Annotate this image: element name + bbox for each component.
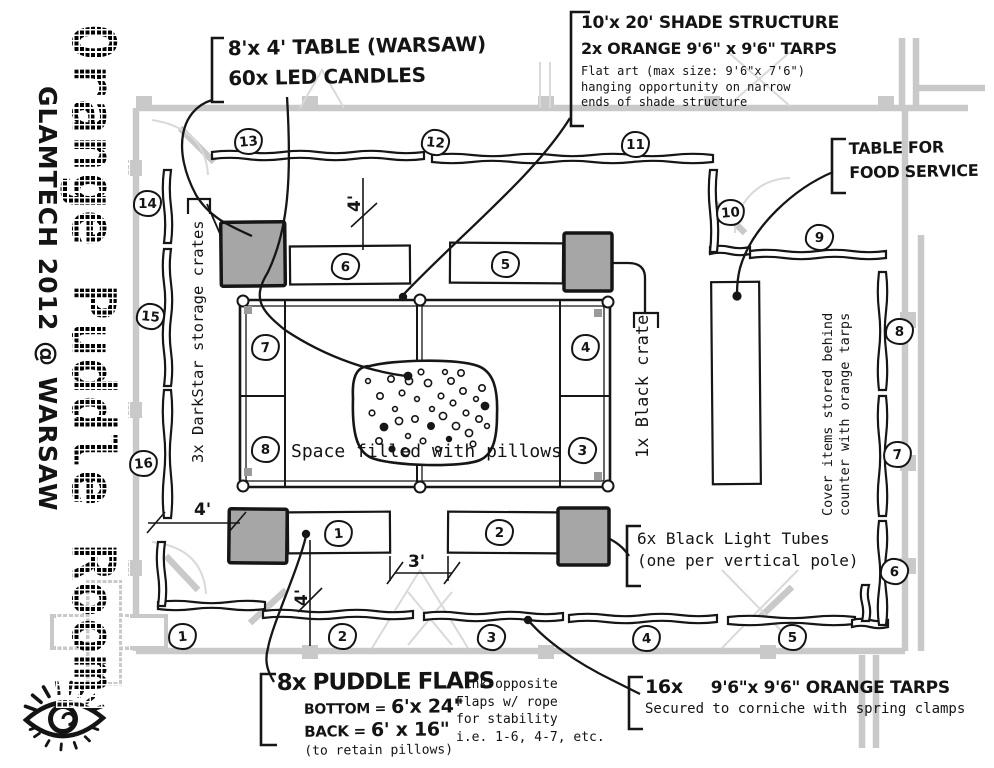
shade-callout-note1: Flat art (max size: 9'6"x 7'6") <box>581 64 839 80</box>
pillow-dot <box>485 424 490 429</box>
dim-label-bottom-4ft: 4' <box>292 589 312 606</box>
dim-label-gap-3ft: 3' <box>408 552 425 572</box>
shade-callout-line2: 2x ORANGE 9'6" x 9'6" TARPS <box>581 39 839 58</box>
pillow-dot <box>366 379 371 384</box>
tarp-wall-segment <box>861 585 870 621</box>
pillow-dot <box>476 416 482 422</box>
shade-callout-line1: 10'x 20' SHADE STRUCTURE <box>581 13 839 33</box>
pillow-dot <box>406 434 411 439</box>
pillow-dot <box>474 397 479 402</box>
label-black-crate: 1x Black crate <box>633 315 653 458</box>
tarp-wall-segment <box>212 151 424 160</box>
tarps-line2: Secured to corniche with spring clamps <box>645 701 965 717</box>
pillow-dot <box>465 429 472 436</box>
eye-ray <box>44 687 50 697</box>
pillow-dot <box>399 390 405 396</box>
shade-callout-note2: hanging opportunity on narrow <box>581 80 839 96</box>
pillow-dot <box>481 402 488 409</box>
food-callout-line1: TABLE FOR <box>849 137 978 158</box>
pillow-dot <box>430 407 435 412</box>
flaps-side4: i.e. 1-6, 4-7, etc. <box>456 729 605 747</box>
tarp-wall-segment <box>728 616 855 625</box>
flaps-bottom-size: 6'x 24" <box>391 695 463 718</box>
callout-food-service: TABLE FOR FOOD SERVICE <box>849 137 979 182</box>
tarp-wall-segment <box>878 396 887 516</box>
callout-orange-tarps: 16x 9'6"x 9'6" ORANGE TARPS Secured to c… <box>645 676 965 717</box>
pillow-dot <box>460 388 466 394</box>
pillow-dot <box>393 407 398 412</box>
label-darkstar-crates: 3x DarkStar storage crates <box>189 220 207 463</box>
floorplan-page: Orange Puddle Room GLAMTECH 2012 @ WARSA… <box>0 0 994 768</box>
tarp-wall-segment <box>163 390 172 518</box>
blacklight-line2: (one per vertical pole) <box>637 551 859 570</box>
pillow-dot <box>424 379 431 386</box>
callout-table-warsaw: 8'x 4' TABLE (WARSAW) 60x LED CANDLES <box>228 32 487 90</box>
event-title: GLAMTECH 2012 @ WARSAW <box>33 86 62 512</box>
eye-ray <box>92 706 102 710</box>
bracket-tarps-callout <box>629 677 643 729</box>
pillow-dot <box>377 393 383 399</box>
tarp-wall-segment <box>569 614 717 623</box>
blacklight-line1: 6x Black Light Tubes <box>637 529 859 548</box>
flaps-side2: Flaps w/ rope <box>456 694 605 712</box>
pillow-dot <box>448 378 454 384</box>
pillow-dot <box>452 422 459 429</box>
tarp-wall-segment <box>750 250 886 259</box>
eye-ray <box>33 695 41 702</box>
eye-ray <box>87 695 95 702</box>
eye-lash <box>92 728 98 730</box>
flaps-bottom-label: BOTTOM = <box>304 701 386 718</box>
tarp-wall-segment <box>424 612 563 621</box>
tarp-wall-segment <box>163 249 172 386</box>
tarp-wall-segment <box>157 542 166 606</box>
food-callout-line2: FOOD SERVICE <box>849 161 978 182</box>
pillow-dot <box>479 385 485 391</box>
tarp-wall-segment <box>263 610 413 619</box>
eye-lash <box>46 741 49 746</box>
pillow-dot <box>458 370 464 376</box>
label-cover-items: Cover items stored behind counter with o… <box>820 313 853 516</box>
dim-label-left-4ft: 4' <box>194 500 211 520</box>
eye-lash <box>85 737 89 741</box>
tarps-count: 16x <box>645 676 683 698</box>
tarp-wall-segment <box>709 170 718 252</box>
eye-ray <box>25 706 35 710</box>
tarp-wall-segment <box>158 601 265 610</box>
label-pillow-space: Space filled with pillows <box>291 441 562 462</box>
crate-bottom-left <box>229 509 288 564</box>
pillow-dot <box>428 423 434 429</box>
food-service-table <box>711 282 761 484</box>
pillow-dot <box>388 376 394 382</box>
pillow-dot <box>380 423 387 430</box>
table-callout-line1: 8'x 4' TABLE (WARSAW) <box>228 32 487 61</box>
callout-flaps-side-note: link opposite Flaps w/ rope for stabilit… <box>456 676 605 746</box>
bracket-flaps-callout <box>261 674 277 745</box>
pillow-dot <box>439 412 446 419</box>
pillow-dot <box>369 410 375 416</box>
crate-top-right <box>564 233 612 291</box>
room-title: Orange Puddle Room <box>60 24 125 692</box>
label-cover-line1: Cover items stored behind <box>820 313 837 516</box>
shade-callout-note3: ends of shade structure <box>581 95 839 111</box>
eye-lash <box>30 728 36 730</box>
pillow-dot <box>438 393 444 399</box>
pillow-dot <box>395 417 402 424</box>
label-cover-line2: counter with orange tarps <box>837 313 854 516</box>
tarps-line1: 9'6"x 9'6" ORANGE TARPS <box>711 678 950 698</box>
pillow-dot <box>450 400 456 406</box>
pillow-dot <box>412 416 418 422</box>
tarp-wall-segment <box>163 170 172 243</box>
eye-lash <box>35 733 40 736</box>
eye-logo <box>25 683 103 750</box>
eye-lash <box>61 744 62 750</box>
eye-lash <box>74 742 76 748</box>
tarp-wall-segment <box>878 272 887 390</box>
dim-label-top-4ft: 4' <box>345 195 365 212</box>
pillow-dot <box>463 410 469 416</box>
pillow-dot <box>418 369 424 375</box>
flaps-side3: for stability <box>456 711 605 729</box>
pillow-dot <box>415 397 420 402</box>
crate-bottom-right <box>558 508 609 565</box>
bracket-food-callout <box>832 139 846 193</box>
pillow-dot <box>443 370 448 375</box>
table-callout-line2: 60x LED CANDLES <box>228 62 487 91</box>
flaps-side1: link opposite <box>456 676 605 694</box>
bracket-table-callout <box>212 38 224 102</box>
callout-blacklight: 6x Black Light Tubes (one per vertical p… <box>637 529 859 570</box>
flaps-back-size: 6' x 16" <box>371 718 450 741</box>
flaps-back-label: BACK = <box>304 722 366 741</box>
tarp-wall-segment <box>432 154 713 163</box>
callout-shade-structure: 10'x 20' SHADE STRUCTURE 2x ORANGE 9'6" … <box>581 13 839 111</box>
tarp-wall-segment <box>878 521 887 625</box>
